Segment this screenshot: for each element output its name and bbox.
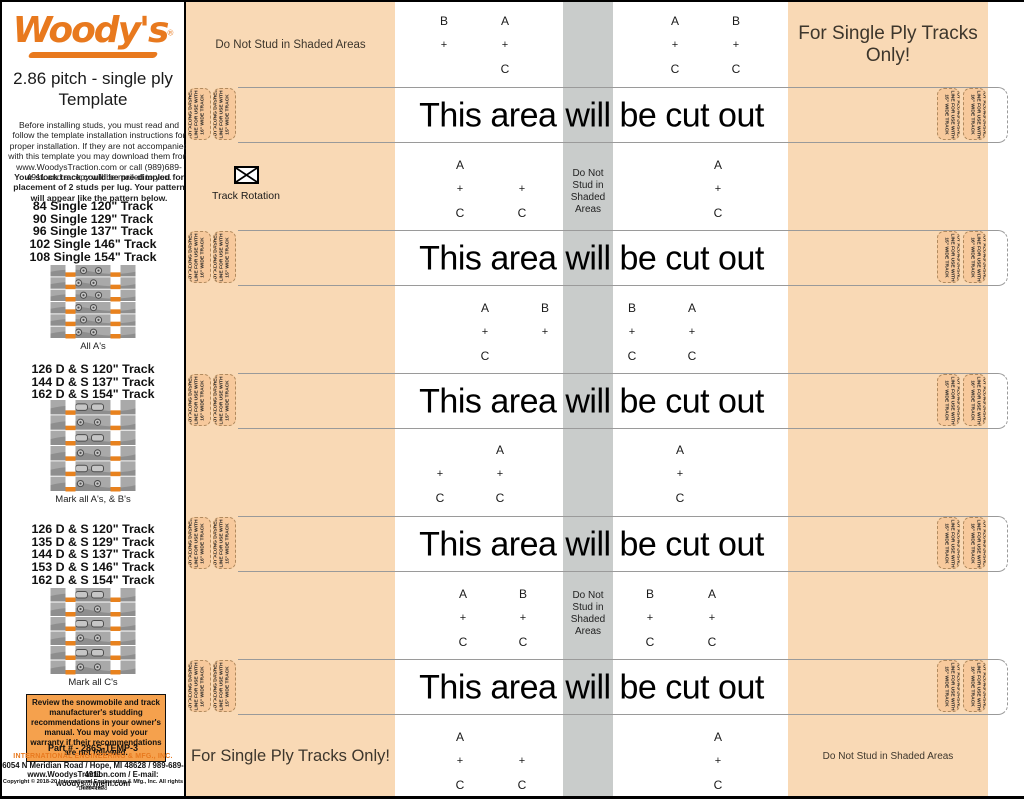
stud-letter-top: A <box>703 726 733 750</box>
stud-letter-top <box>507 154 537 178</box>
page-title: 2.86 pitch - single ply Template <box>2 68 184 110</box>
cut-tab-text: CUT ALONG DASHED LINE FOR USE WITH 15" W… <box>938 661 961 713</box>
stud-mark-group: A+C <box>677 297 707 369</box>
stud-mark-group: +C <box>507 726 537 798</box>
stud-letter-bottom: C <box>507 774 537 798</box>
cut-tab-15-right: CUT ALONG DASHED LINE FOR USE WITH 15" W… <box>937 517 960 569</box>
stud-letter-top: B <box>530 297 560 321</box>
cut-tab-16-right: CUT ALONG DASHED LINE FOR USE WITH 16" W… <box>963 374 986 426</box>
track-pattern-image-c <box>51 588 136 680</box>
cut-tab-16-right: CUT ALONG DASHED LINE FOR USE WITH 16" W… <box>963 660 986 712</box>
cut-tab-16-right: CUT ALONG DASHED LINE FOR USE WITH 16" W… <box>963 231 986 283</box>
cut-tab-text: CUT ALONG DASHED LINE FOR USE WITH 15" W… <box>938 518 961 570</box>
do-not-stud-top-left: Do Not Stud in Shaded Areas <box>186 2 395 87</box>
cut-tab-text: CUT ALONG DASHED LINE FOR USE WITH 16" W… <box>189 518 212 570</box>
cut-tab-text: CUT ALONG DASHED LINE FOR USE WITH 15" W… <box>938 375 961 427</box>
woodys-logo: Woody's® <box>2 10 184 58</box>
stud-letter-bottom: C <box>697 631 727 655</box>
stud-letter-top: A <box>677 297 707 321</box>
stud-mark-group: A+C <box>490 10 520 82</box>
stud-cross-mark: + <box>665 463 695 487</box>
cut-tab-text: CUT ALONG DASHED LINE FOR USE WITH 16" W… <box>964 375 987 427</box>
stud-letter-bottom: C <box>485 487 515 511</box>
track-list-ds-short: 126 D & S 120" Track 144 D & S 137" Trac… <box>2 363 184 401</box>
track-caption-a: All A's <box>2 341 184 352</box>
logo-text: Woody's <box>13 10 168 51</box>
cut-tab-15-right: CUT ALONG DASHED LINE FOR USE WITH 15" W… <box>937 88 960 140</box>
stud-letter-top: A <box>470 297 500 321</box>
track-rotation: Track Rotation <box>192 166 300 202</box>
do-not-stud-strip-label: Do Not Stud in Shaded Areas <box>563 168 613 216</box>
cut-tab-text: CUT ALONG DASHED LINE FOR USE WITH 15" W… <box>214 89 237 141</box>
cut-tab-16-left: CUT ALONG DASHED LINE FOR USE WITH 16" W… <box>188 660 211 712</box>
track-list-ds-full: 126 D & S 120" Track 135 D & S 129" Trac… <box>2 523 184 587</box>
cut-tab-text: CUT ALONG DASHED LINE FOR USE WITH 15" W… <box>214 518 237 570</box>
cut-tab-16-right: CUT ALONG DASHED LINE FOR USE WITH 16" W… <box>963 517 986 569</box>
track-pattern-image-a <box>51 265 136 344</box>
stud-cross-mark: + <box>507 750 537 774</box>
stud-letter-bottom: C <box>425 487 455 511</box>
stud-letter-bottom: C <box>448 631 478 655</box>
cut-out-band: CUT ALONG DASHED LINE FOR USE WITH 16" W… <box>186 230 1008 287</box>
stud-letter-bottom: C <box>721 58 751 82</box>
stud-letter-top: A <box>665 439 695 463</box>
page-title-line2: Template <box>2 89 184 110</box>
stud-letter-bottom: C <box>507 202 537 226</box>
cut-out-band: CUT ALONG DASHED LINE FOR USE WITH 16" W… <box>186 659 1008 716</box>
stud-letter-bottom: C <box>635 631 665 655</box>
cut-tab-15-left: CUT ALONG DASHED LINE FOR USE WITH 15" W… <box>213 660 236 712</box>
stud-letter-top <box>507 726 537 750</box>
cut-tab-15-left: CUT ALONG DASHED LINE FOR USE WITH 15" W… <box>213 374 236 426</box>
cut-tab-text: CUT ALONG DASHED LINE FOR USE WITH 16" W… <box>964 661 987 713</box>
stud-letter-top: B <box>429 10 459 34</box>
stud-letter-top: A <box>703 154 733 178</box>
stud-letter-bottom: C <box>445 202 475 226</box>
stud-letter-top: B <box>635 583 665 607</box>
cut-tab-text: CUT ALONG DASHED LINE FOR USE WITH 16" W… <box>189 232 212 284</box>
stud-letter-top: A <box>485 439 515 463</box>
stud-cross-mark: + <box>445 178 475 202</box>
stud-mark-group: +C <box>425 439 455 511</box>
logo-underline <box>28 52 159 58</box>
stud-letter-top: A <box>445 726 475 750</box>
stud-cross-mark: + <box>635 607 665 631</box>
stud-cross-mark: + <box>470 321 500 345</box>
stud-mark-group: A+C <box>485 439 515 511</box>
stud-letter-top: A <box>697 583 727 607</box>
stud-cross-mark: + <box>617 321 647 345</box>
stud-letter-bottom: C <box>490 58 520 82</box>
stud-letter-top: A <box>445 154 475 178</box>
track-caption-c: Mark all C's <box>2 677 184 688</box>
stud-mark-group: A+C <box>470 297 500 369</box>
stud-mark-group: A+C <box>445 154 475 226</box>
stud-cross-mark: + <box>703 750 733 774</box>
doc-number: Doc041828 <box>2 786 184 792</box>
cut-out-band: CUT ALONG DASHED LINE FOR USE WITH 16" W… <box>186 516 1008 573</box>
track-pattern-image-ab <box>51 400 136 497</box>
template-page: Woody's® 2.86 pitch - single ply Templat… <box>0 0 1024 799</box>
cut-band-label: This area will be cut out <box>395 668 788 707</box>
cut-tab-text: CUT ALONG DASHED LINE FOR USE WITH 15" W… <box>214 232 237 284</box>
stud-mark-group: A+C <box>703 726 733 798</box>
cut-band-label: This area will be cut out <box>395 239 788 278</box>
cut-tab-16-left: CUT ALONG DASHED LINE FOR USE WITH 16" W… <box>188 374 211 426</box>
stud-mark-group: B+C <box>508 583 538 655</box>
stud-mark-group: A+C <box>448 583 478 655</box>
track-caption-ab: Mark all A's, & B's <box>2 494 184 505</box>
stud-letter-bottom: C <box>617 345 647 369</box>
stud-letter-bottom: C <box>677 345 707 369</box>
stud-cross-mark: + <box>508 607 538 631</box>
stud-letter-top: A <box>660 10 690 34</box>
page-title-line1: 2.86 pitch - single ply <box>2 68 184 89</box>
cut-tab-text: CUT ALONG DASHED LINE FOR USE WITH 15" W… <box>214 661 237 713</box>
stud-mark-group: B+ <box>429 10 459 82</box>
stud-letter-top: B <box>617 297 647 321</box>
cut-tab-text: CUT ALONG DASHED LINE FOR USE WITH 15" W… <box>938 89 961 141</box>
stud-letter-top: A <box>490 10 520 34</box>
cut-tab-text: CUT ALONG DASHED LINE FOR USE WITH 16" W… <box>964 232 987 284</box>
stud-letter-bottom: C <box>445 774 475 798</box>
cut-tab-text: CUT ALONG DASHED LINE FOR USE WITH 16" W… <box>964 518 987 570</box>
cut-tab-text: CUT ALONG DASHED LINE FOR USE WITH 16" W… <box>964 89 987 141</box>
cut-tab-15-right: CUT ALONG DASHED LINE FOR USE WITH 15" W… <box>937 374 960 426</box>
cut-tab-15-left: CUT ALONG DASHED LINE FOR USE WITH 15" W… <box>213 88 236 140</box>
cut-tab-text: CUT ALONG DASHED LINE FOR USE WITH 16" W… <box>189 661 212 713</box>
stud-mark-group: B+C <box>617 297 647 369</box>
template-main-area: Do Not Stud in Shaded Areas For Single P… <box>186 2 1024 798</box>
do-not-stud-strip-label: Do Not Stud in Shaded Areas <box>563 590 613 638</box>
cut-tab-15-right: CUT ALONG DASHED LINE FOR USE WITH 15" W… <box>937 231 960 283</box>
stud-cross-mark: + <box>448 607 478 631</box>
stud-cross-mark: + <box>677 321 707 345</box>
stud-mark-group: A+C <box>665 439 695 511</box>
cut-out-band: CUT ALONG DASHED LINE FOR USE WITH 16" W… <box>186 373 1008 430</box>
stud-letter-bottom: C <box>703 202 733 226</box>
stud-mark-group: B+C <box>721 10 751 82</box>
stud-mark-group: A+C <box>445 726 475 798</box>
stud-cross-mark: + <box>485 463 515 487</box>
cut-tab-16-right: CUT ALONG DASHED LINE FOR USE WITH 16" W… <box>963 88 986 140</box>
stud-cross-mark: + <box>429 34 459 58</box>
stud-cross-mark: + <box>660 34 690 58</box>
stud-letter-bottom: C <box>660 58 690 82</box>
do-not-stud-bottom-right: Do Not Stud in Shaded Areas <box>788 716 988 797</box>
cut-tab-text: CUT ALONG DASHED LINE FOR USE WITH 16" W… <box>189 375 212 427</box>
single-ply-top-right: For Single Ply Tracks Only! <box>788 2 988 87</box>
stud-cross-mark: + <box>445 750 475 774</box>
cut-tab-15-left: CUT ALONG DASHED LINE FOR USE WITH 15" W… <box>213 517 236 569</box>
stud-letter-bottom: C <box>665 487 695 511</box>
stud-letter-top <box>425 439 455 463</box>
track-rotation-label: Track Rotation <box>192 190 300 202</box>
cut-tab-16-left: CUT ALONG DASHED LINE FOR USE WITH 16" W… <box>188 231 211 283</box>
stud-letter-top: B <box>721 10 751 34</box>
stud-cross-mark: + <box>703 178 733 202</box>
company-name: INTERNATIONAL ENGINEERING & MFG., INC. <box>2 753 184 760</box>
cut-band-label: This area will be cut out <box>395 96 788 135</box>
track-rotation-icon <box>234 171 259 188</box>
stud-letter-top: A <box>448 583 478 607</box>
stud-mark-group: A+C <box>697 583 727 655</box>
stud-mark-group: B+ <box>530 297 560 369</box>
stud-cross-mark: + <box>507 178 537 202</box>
stud-letter-top: B <box>508 583 538 607</box>
single-ply-bottom-left: For Single Ply Tracks Only! <box>186 716 395 797</box>
stud-cross-mark: + <box>425 463 455 487</box>
stud-letter-bottom: C <box>470 345 500 369</box>
sidebar: Woody's® 2.86 pitch - single ply Templat… <box>2 2 186 796</box>
stud-letter-bottom: C <box>703 774 733 798</box>
stud-mark-group: +C <box>507 154 537 226</box>
stud-cross-mark: + <box>721 34 751 58</box>
cut-out-band: CUT ALONG DASHED LINE FOR USE WITH 16" W… <box>186 87 1008 144</box>
cut-band-label: This area will be cut out <box>395 382 788 421</box>
stud-mark-group: B+C <box>635 583 665 655</box>
cut-tab-text: CUT ALONG DASHED LINE FOR USE WITH 15" W… <box>938 232 961 284</box>
stud-cross-mark: + <box>697 607 727 631</box>
cut-tab-15-left: CUT ALONG DASHED LINE FOR USE WITH 15" W… <box>213 231 236 283</box>
stud-cross-mark: + <box>530 321 560 345</box>
part-number: Part # - 286S-TEMP-3 <box>2 743 184 753</box>
cut-band-label: This area will be cut out <box>395 525 788 564</box>
stud-letter-bottom <box>429 58 459 82</box>
stud-cross-mark: + <box>490 34 520 58</box>
cut-tab-16-left: CUT ALONG DASHED LINE FOR USE WITH 16" W… <box>188 517 211 569</box>
cut-tab-16-left: CUT ALONG DASHED LINE FOR USE WITH 16" W… <box>188 88 211 140</box>
stud-letter-bottom: C <box>508 631 538 655</box>
cut-tab-15-right: CUT ALONG DASHED LINE FOR USE WITH 15" W… <box>937 660 960 712</box>
cut-tab-text: CUT ALONG DASHED LINE FOR USE WITH 16" W… <box>189 89 212 141</box>
stud-letter-bottom <box>530 345 560 369</box>
track-list-singles: 84 Single 120" Track 90 Single 129" Trac… <box>2 200 184 264</box>
stud-mark-group: A+C <box>703 154 733 226</box>
cut-tab-text: CUT ALONG DASHED LINE FOR USE WITH 15" W… <box>214 375 237 427</box>
registered-mark: ® <box>167 29 173 38</box>
stud-mark-group: A+C <box>660 10 690 82</box>
